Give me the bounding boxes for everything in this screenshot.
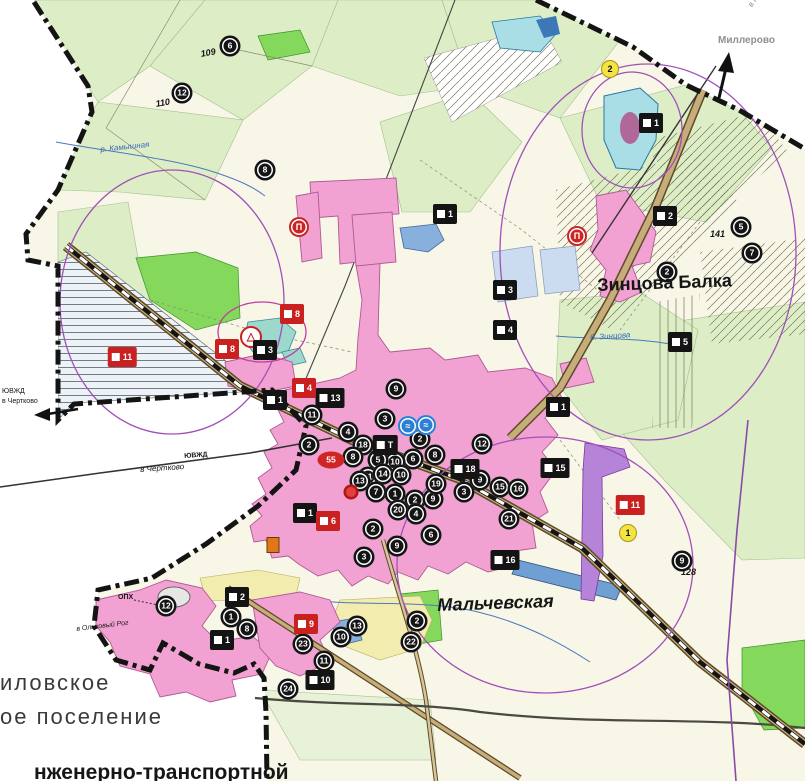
map-canvas: 6128572912182310111324222114183928610581… (0, 0, 805, 781)
cemetery-symbol (158, 587, 190, 607)
arrow-northeast (718, 52, 734, 98)
map-base-graphics (0, 0, 805, 781)
